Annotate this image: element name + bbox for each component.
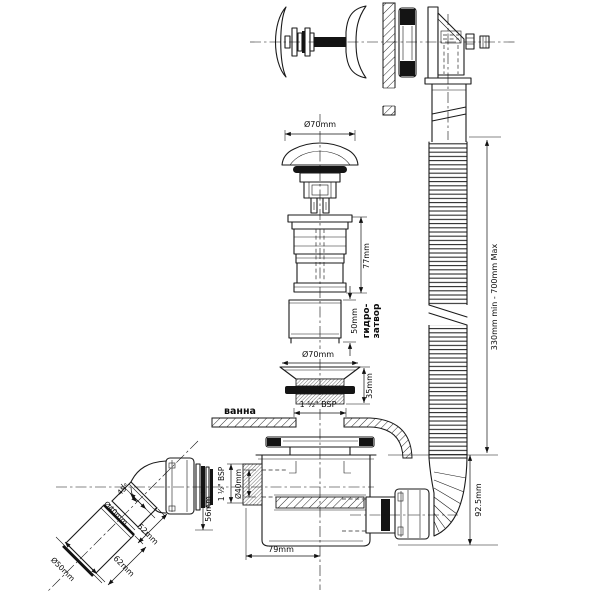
outlet-tail (366, 489, 429, 539)
overflow-gasket (399, 8, 416, 77)
flexible-hose (427, 142, 469, 536)
thread-height-text: 35mm (365, 373, 374, 399)
exploded-diagram: Ø70mm 77mm 50mm гидро- затвор Ø70mm 35mm… (0, 0, 600, 600)
water-seal-label-1: гидро- (362, 303, 372, 338)
drawing-canvas: Ø70mm 77mm 50mm гидро- затвор Ø70mm 35mm… (0, 0, 600, 600)
hose-ribs (429, 142, 467, 458)
body-height-text: 77mm (362, 243, 371, 269)
thread-size-text: 1 ½" BSP (300, 400, 337, 409)
tail-height-text: 92.5mm (474, 483, 483, 517)
trap-depth-text: 56mm (204, 496, 213, 522)
inlet-diameter-text: Ø40mm (234, 469, 243, 499)
bath-wall-section (382, 3, 396, 115)
hose-length-text: 330mm min - 700mm Max (490, 244, 499, 351)
plug-diameter-text: Ø70mm (304, 119, 336, 129)
hose-break (427, 305, 469, 325)
inlet-thread-text: 1 ½" BSP (217, 466, 226, 501)
bath-label: ванна (224, 406, 256, 417)
trap-body (243, 447, 376, 546)
trap-offset-text: 79mm (268, 545, 294, 554)
flange-diameter-text: Ø70mm (302, 349, 334, 359)
water-seal-height-text: 50mm (350, 308, 359, 334)
outlet-nut (395, 489, 429, 539)
water-seal-label-2: затвор (372, 303, 382, 338)
